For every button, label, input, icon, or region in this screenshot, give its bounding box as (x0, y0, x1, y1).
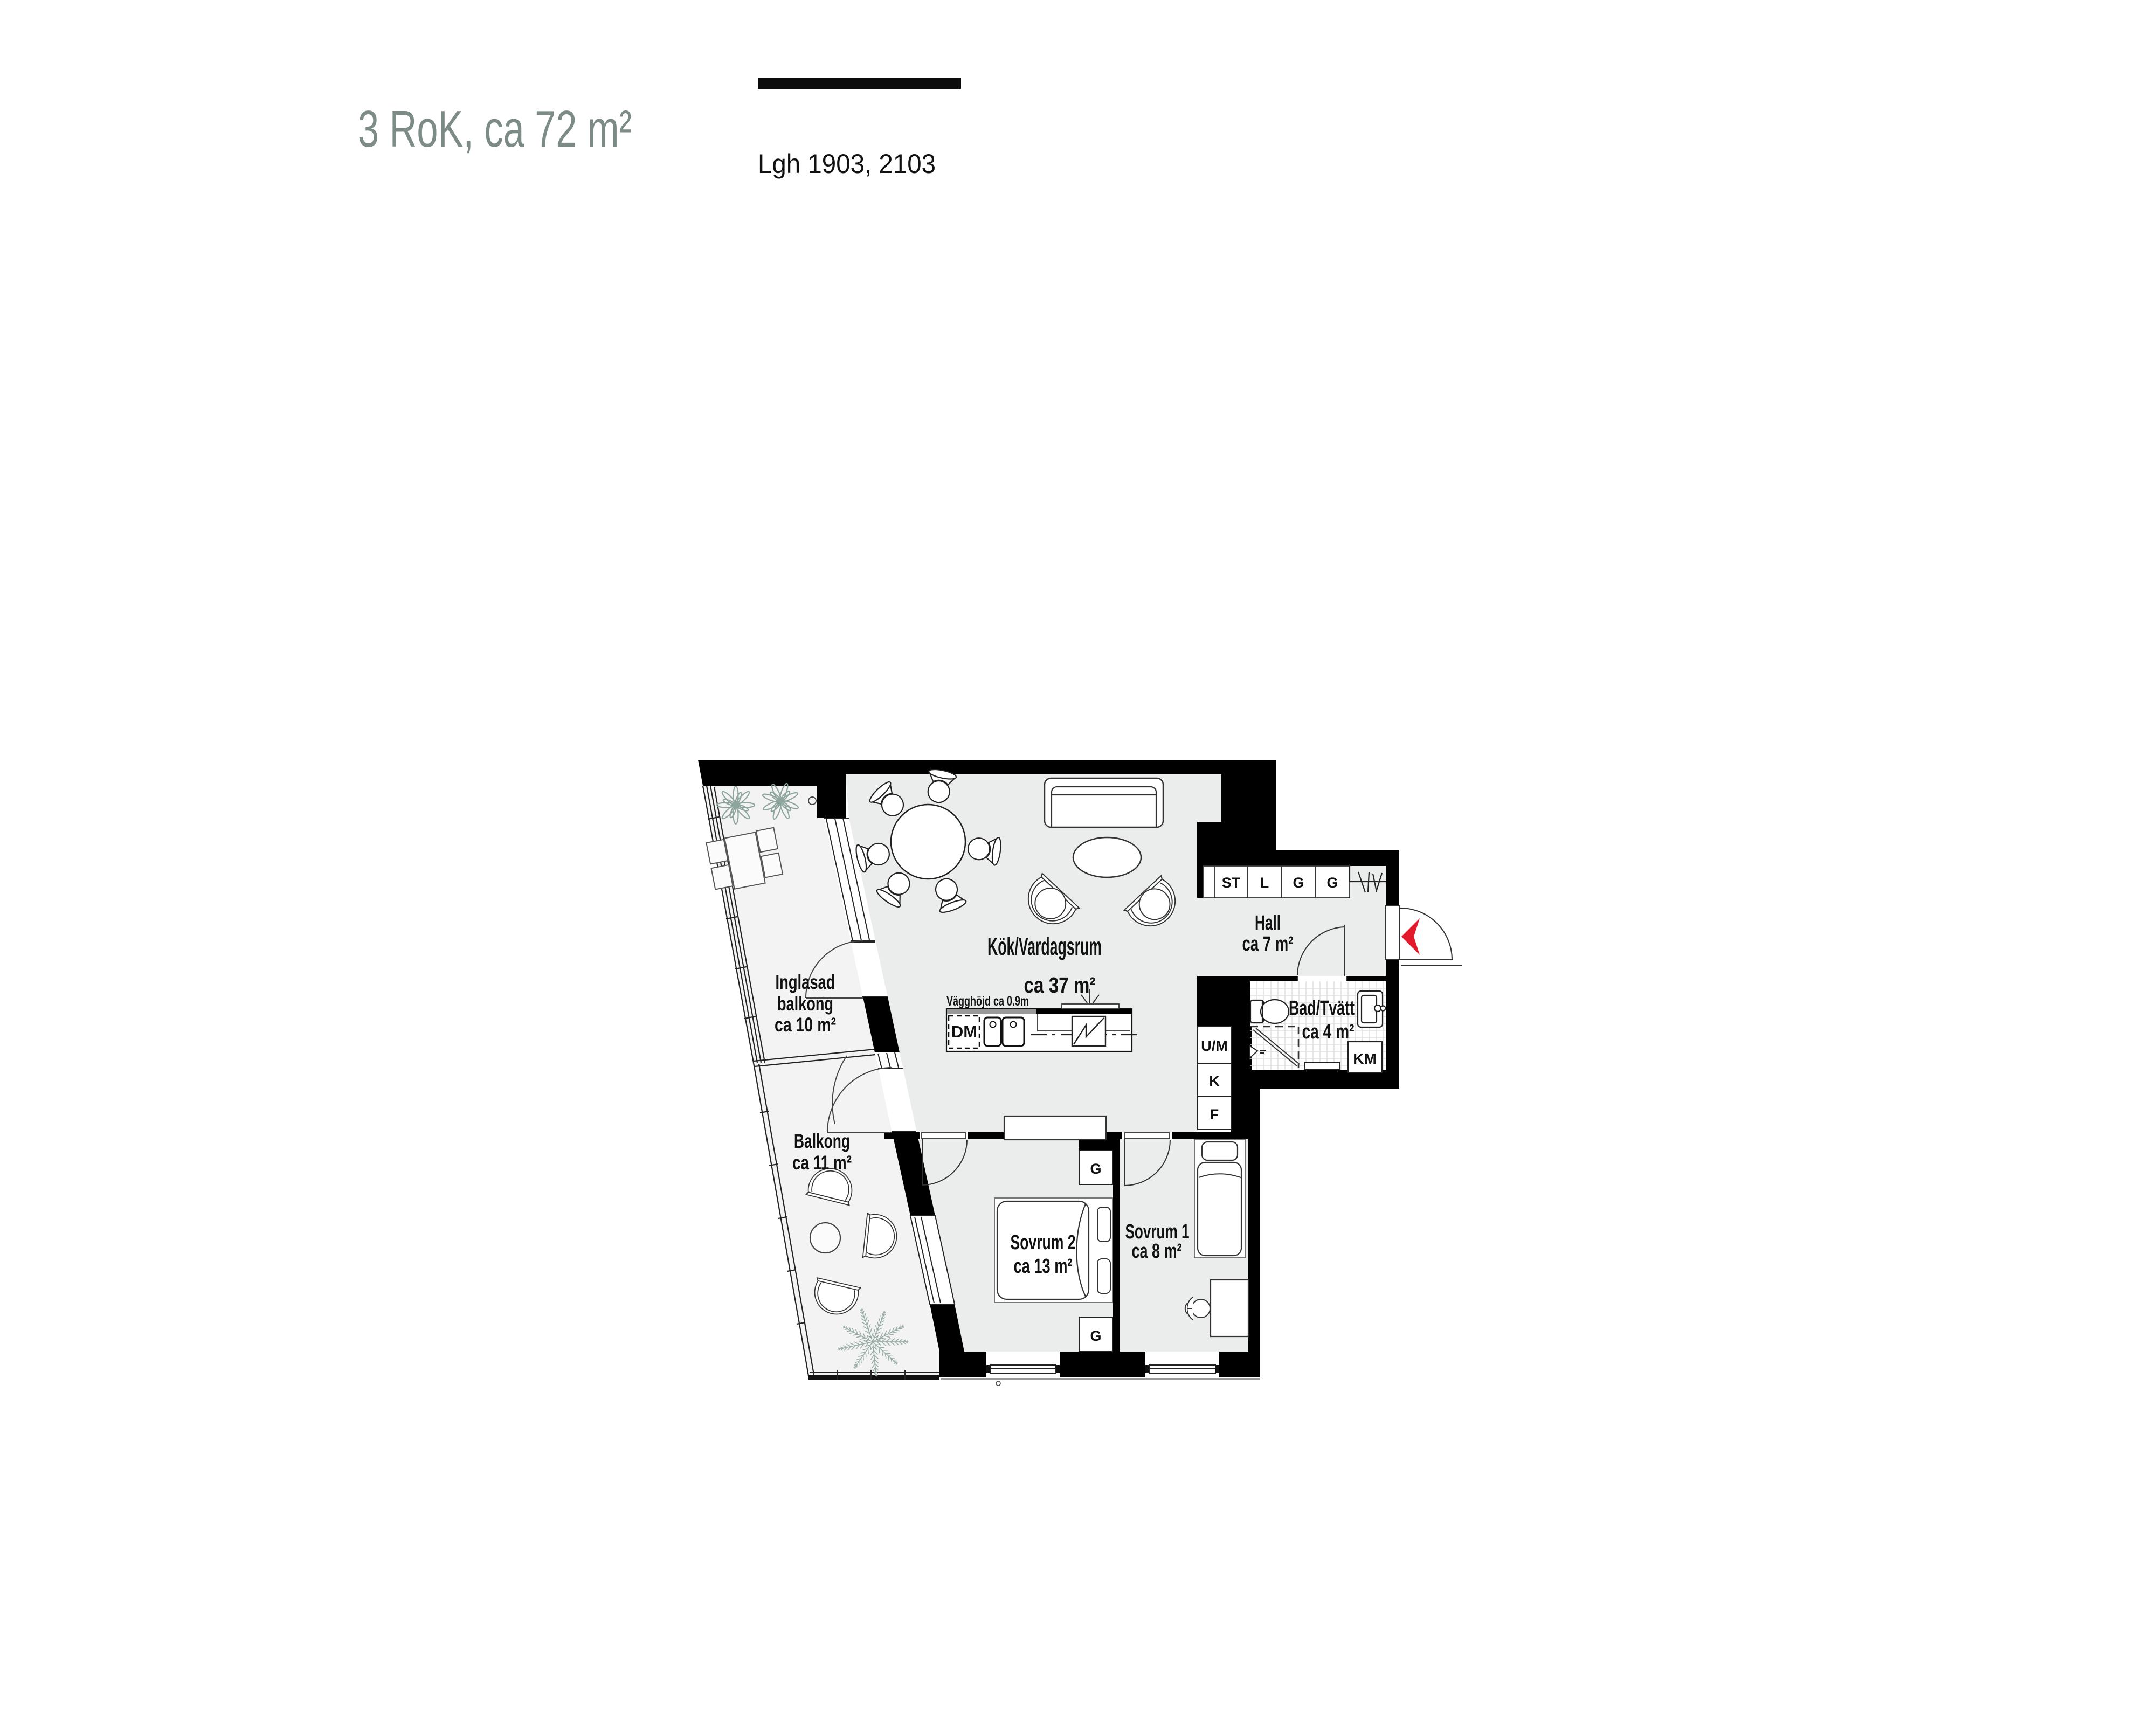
svg-text:G: G (1326, 875, 1338, 891)
svg-text:ca 8 m²: ca 8 m² (1132, 1240, 1182, 1263)
svg-text:ST: ST (1222, 875, 1241, 891)
svg-text:G: G (1293, 875, 1304, 891)
svg-text:G: G (1090, 1328, 1101, 1344)
svg-text:balkong: balkong (777, 993, 833, 1015)
svg-text:Lgh 1903, 2103: Lgh 1903, 2103 (758, 149, 936, 179)
svg-text:ca 37 m²: ca 37 m² (1024, 973, 1096, 997)
svg-text:U/M: U/M (1201, 1038, 1228, 1054)
svg-text:F: F (1210, 1106, 1219, 1123)
svg-text:Hall: Hall (1255, 912, 1281, 934)
svg-text:ca 13 m²: ca 13 m² (1014, 1255, 1073, 1278)
svg-text:ca 4 m²: ca 4 m² (1302, 1021, 1355, 1043)
svg-text:L: L (1260, 875, 1269, 891)
svg-text:3 RoK, ca 72 m²: 3 RoK, ca 72 m² (358, 100, 632, 158)
svg-text:ca 11 m²: ca 11 m² (792, 1152, 852, 1174)
svg-text:Vägghöjd ca 0.9m: Vägghöjd ca 0.9m (946, 994, 1029, 1009)
svg-text:KM: KM (1353, 1050, 1377, 1067)
svg-text:Kök/Vardagsrum: Kök/Vardagsrum (987, 932, 1102, 960)
svg-text:ca 10 m²: ca 10 m² (775, 1014, 836, 1036)
svg-text:K: K (1209, 1073, 1220, 1089)
svg-text:Bad/Tvätt: Bad/Tvätt (1289, 997, 1355, 1020)
svg-text:Inglasad: Inglasad (776, 971, 835, 993)
svg-text:Balkong: Balkong (794, 1130, 850, 1152)
svg-text:Sovrum 2: Sovrum 2 (1011, 1231, 1076, 1254)
svg-text:G: G (1090, 1161, 1101, 1177)
svg-text:DM: DM (951, 1022, 977, 1041)
svg-text:ca 7 m²: ca 7 m² (1242, 933, 1294, 955)
